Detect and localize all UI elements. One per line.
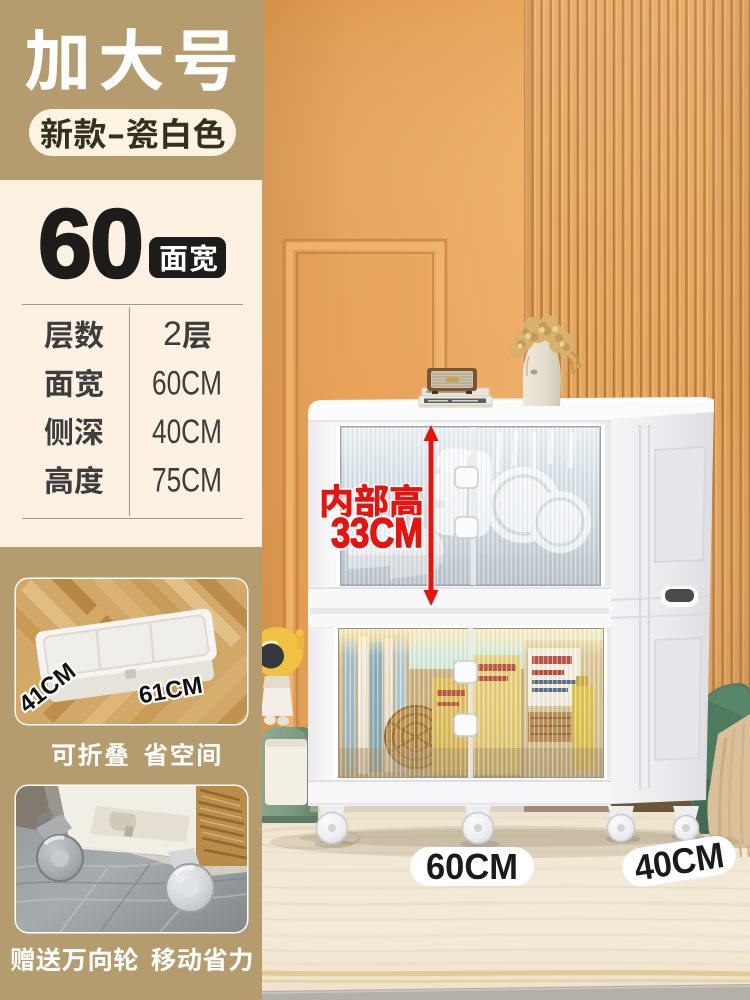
svg-text:33CM: 33CM	[331, 509, 423, 556]
svg-text:2: 2	[163, 315, 182, 353]
svg-text:40CM: 40CM	[152, 413, 222, 451]
svg-text:60CM: 60CM	[152, 365, 222, 403]
svg-text:75CM: 75CM	[152, 462, 222, 500]
svg-text:60: 60	[38, 189, 142, 298]
svg-text:60CM: 60CM	[426, 846, 518, 887]
